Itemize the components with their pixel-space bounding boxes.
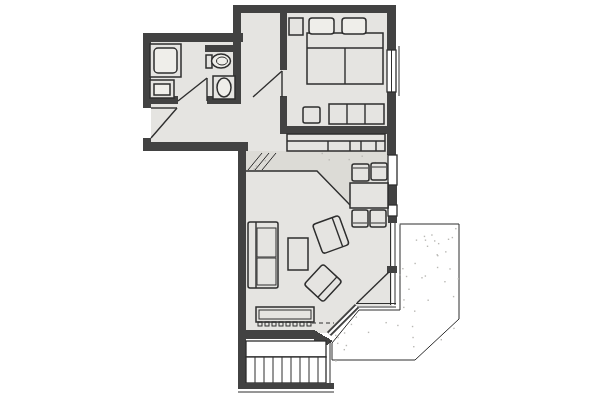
speckle-dot xyxy=(337,337,338,338)
speckle-dot xyxy=(412,326,413,327)
bedroom-west-wall-upper xyxy=(280,5,287,70)
speckle-dot xyxy=(254,168,255,169)
speckle-dot xyxy=(402,268,403,269)
east-wall-mid xyxy=(387,92,396,155)
speckle-dot xyxy=(399,223,400,224)
bedroom-south-wall xyxy=(287,126,394,134)
speckle-dot xyxy=(416,239,417,240)
speckle-dot xyxy=(335,335,336,336)
speckle-dot xyxy=(344,332,345,333)
speckle-dot xyxy=(348,159,349,160)
speckle-dot xyxy=(449,268,450,269)
east-wall-terrace-stub xyxy=(388,216,397,223)
dining-chair-1 xyxy=(352,164,369,181)
speckle-dot xyxy=(453,328,454,329)
speckle-dot xyxy=(413,346,414,347)
living-south-wall xyxy=(238,330,314,339)
speckle-dot xyxy=(397,325,398,326)
speckle-dot xyxy=(437,255,438,256)
exterior-stairs xyxy=(238,341,334,392)
dining-east-window xyxy=(388,155,397,185)
speckle-dot xyxy=(408,289,409,290)
speckle-dot xyxy=(455,228,456,229)
east-wall-upper xyxy=(387,5,396,50)
speckle-dot xyxy=(424,236,425,237)
east-wall-lower xyxy=(388,185,397,205)
speckle-dot xyxy=(421,277,422,278)
speckle-dot xyxy=(427,246,428,247)
speckle-dot xyxy=(458,349,459,350)
nightstand xyxy=(289,18,303,35)
speckle-dot xyxy=(437,267,438,268)
washbasin-bowl xyxy=(217,78,231,97)
speckle-dot xyxy=(431,234,432,235)
speckle-dot xyxy=(255,165,256,166)
pillow-right xyxy=(342,18,366,34)
speckle-dot xyxy=(425,239,426,240)
dining-chair-2 xyxy=(371,163,387,180)
sofa xyxy=(248,222,278,288)
bathroom-north-wall xyxy=(143,33,243,42)
speckle-dot xyxy=(337,343,338,344)
sideboard xyxy=(287,134,385,151)
speckle-dot xyxy=(403,307,404,308)
speckle-dot xyxy=(441,339,442,340)
speckle-dot xyxy=(346,345,347,346)
entry-door-opening xyxy=(143,108,151,138)
bedroom-west-wall-lower xyxy=(280,96,287,134)
washing-machine-drum xyxy=(154,84,170,95)
speckle-dot xyxy=(453,296,454,297)
speckle-dot xyxy=(414,310,415,311)
speckle-dot xyxy=(412,337,413,338)
speckle-dot xyxy=(427,300,428,301)
speckle-dot xyxy=(403,299,404,300)
speckle-dot xyxy=(425,275,426,276)
speckle-dot xyxy=(368,332,369,333)
dining-chair-4 xyxy=(370,210,386,227)
speckle-dot xyxy=(385,322,386,323)
dining-table xyxy=(350,183,388,208)
bench xyxy=(256,307,314,322)
speckle-dot xyxy=(414,263,415,264)
speckle-dot xyxy=(356,316,357,317)
stair-bottom-band xyxy=(238,383,334,389)
shower-basin xyxy=(154,48,177,73)
speckle-dot xyxy=(351,324,352,325)
speckle-dot xyxy=(265,160,266,161)
speckle-dot xyxy=(335,360,336,361)
hallway-south-wall xyxy=(143,142,248,151)
pillow-left xyxy=(309,18,334,34)
speckle-dot xyxy=(444,281,445,282)
speckle-dot xyxy=(322,153,323,154)
floor-plan-canvas xyxy=(0,0,600,400)
stair-flight xyxy=(246,357,326,383)
speckle-dot xyxy=(329,159,330,160)
speckle-dot xyxy=(448,239,449,240)
small-east-window xyxy=(388,205,397,216)
speckle-dot xyxy=(399,274,400,275)
toilet-partition xyxy=(205,45,241,52)
living-west-wall xyxy=(238,142,246,388)
dining-chair-3 xyxy=(352,210,368,227)
speckle-dot xyxy=(361,156,362,157)
coffee-table xyxy=(288,238,308,270)
speckle-dot xyxy=(438,243,439,244)
stool xyxy=(303,107,320,123)
dresser xyxy=(329,104,384,124)
speckle-dot xyxy=(434,240,435,241)
stair-landing xyxy=(246,341,326,357)
speckle-dot xyxy=(445,251,446,252)
speckle-dot xyxy=(452,237,453,238)
speckle-dot xyxy=(458,278,459,279)
bedroom-north-wall xyxy=(233,5,393,13)
speckle-dot xyxy=(344,349,345,350)
speckle-dot xyxy=(406,276,407,277)
